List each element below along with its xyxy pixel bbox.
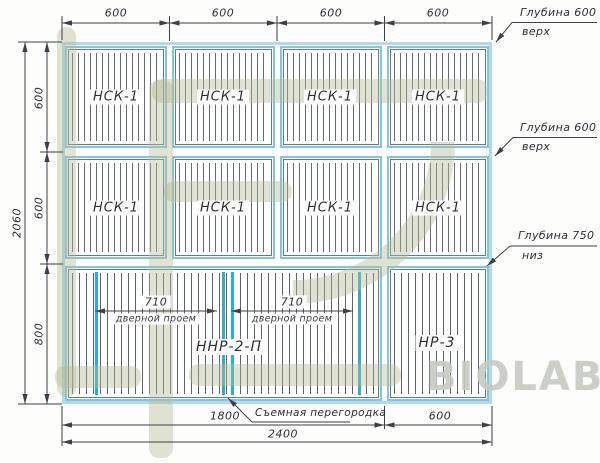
panel-label-nsk1: НСК-1: [197, 90, 249, 105]
callout-depth-top1-line2: верх: [522, 25, 550, 38]
dim-top-2: 600: [212, 7, 235, 20]
callout-depth-top1-line1: Глубина 600: [520, 6, 596, 19]
dim-top-1: 600: [105, 7, 128, 20]
callout-depth-top2-line1: Глубина 600: [520, 121, 596, 134]
panel-label-nr3: НР-3: [416, 335, 459, 351]
panel-label-nsk1: НСК-1: [90, 90, 142, 105]
door-caption-1: дверной проем: [113, 314, 199, 325]
panel-label-nsk1: НСК-1: [412, 201, 464, 216]
dim-bottom-600: 600: [429, 410, 452, 423]
panel-label-nsk1: НСК-1: [90, 201, 142, 216]
panel-label-nnr2p: ННР-2-П: [193, 339, 265, 355]
technical-drawing: BIOLAB: [0, 0, 600, 463]
dim-left-row2: 600: [33, 197, 46, 220]
panel-label-nsk1: НСК-1: [304, 90, 356, 105]
callout-depth-bottom-line1: Глубина 750: [518, 229, 594, 242]
dim-left-row3: 800: [33, 323, 46, 346]
dimension-lines-layer: [0, 0, 600, 463]
door-dim-1: 710: [142, 296, 171, 309]
panel-label-nsk1: НСК-1: [304, 201, 356, 216]
dim-left-row1: 600: [33, 87, 46, 110]
callout-depth-top2-line2: верх: [522, 140, 550, 153]
dim-bottom-1800: 1800: [210, 410, 240, 423]
dim-left-overall: 2060: [11, 208, 24, 238]
panel-label-nsk1: НСК-1: [197, 201, 249, 216]
door-dim-2: 710: [278, 296, 307, 309]
dim-bottom-2400: 2400: [268, 428, 298, 441]
panel-label-nsk1: НСК-1: [412, 90, 464, 105]
dim-top-3: 600: [320, 7, 343, 20]
callout-depth-bottom-line2: низ: [522, 249, 543, 262]
callout-removable-partition: Съемная перегородка: [255, 407, 386, 419]
dim-top-4: 600: [427, 7, 450, 20]
door-caption-2: дверной проем: [249, 314, 335, 325]
